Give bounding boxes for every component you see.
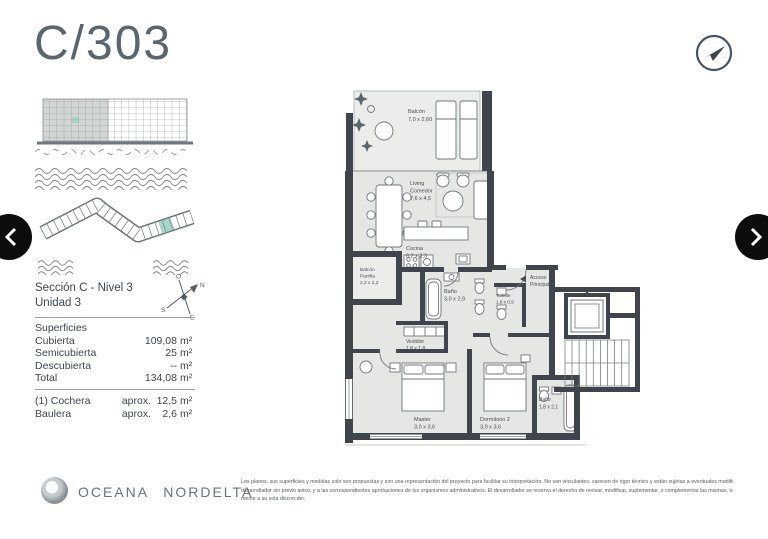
table-row: Cubierta 109,08 m² bbox=[35, 335, 195, 347]
table-row: Descubierta -- m² bbox=[35, 360, 195, 372]
row-label: Semicubierta bbox=[35, 347, 133, 359]
legal-disclaimer: Los planos, sus superficies y medidas so… bbox=[241, 478, 733, 504]
brand-logo-icon bbox=[41, 477, 68, 504]
brochure-page: C/303 bbox=[0, 0, 768, 539]
row-value: 25 bbox=[133, 347, 177, 359]
section-line: Sección C - Nivel 3 bbox=[35, 281, 133, 296]
send-arrow-icon bbox=[692, 31, 736, 75]
unit-line: Unidad 3 bbox=[35, 296, 133, 311]
compass-o: O bbox=[176, 274, 181, 281]
room-dim-balcon: 7,0 x 2,60 bbox=[408, 117, 432, 123]
table-row: Total 134,08 m² bbox=[35, 372, 195, 384]
room-label-vestidor: Vestidor bbox=[406, 339, 424, 345]
north-arrow-icon bbox=[190, 284, 198, 293]
label-acceso: Acceso bbox=[530, 275, 547, 281]
row-unit: m² bbox=[180, 372, 195, 384]
page-title: C/303 bbox=[34, 16, 172, 71]
room-dim-living: 7,6 x 4,5 bbox=[410, 196, 431, 202]
row-unit: m² bbox=[180, 408, 195, 421]
room-label-toilette: Toilette bbox=[496, 293, 511, 298]
row-value: 134,08 bbox=[133, 372, 177, 384]
water-waves-small-left bbox=[38, 259, 80, 275]
surfaces-header: Superficies bbox=[35, 322, 195, 335]
room-label-bano: Baño bbox=[444, 289, 457, 295]
table-row: Semicubierta 25 m² bbox=[35, 347, 195, 359]
row-unit: m² bbox=[180, 335, 195, 347]
disclaimer-line: mente a su sola discreción. bbox=[241, 495, 733, 504]
row-prefix: aprox. bbox=[122, 408, 151, 421]
row-label: Descubierta bbox=[35, 360, 133, 372]
room-dim-bano2: 1,8 x 2,1 bbox=[539, 405, 558, 411]
row-value: 2,6 bbox=[151, 408, 177, 421]
room-label-dormitorio2: Dormitorio 2 bbox=[480, 417, 510, 423]
row-label: Baulera bbox=[35, 408, 122, 421]
row-label: (1) Cochera bbox=[35, 395, 122, 408]
room-label-parrilla: Balcón bbox=[360, 267, 375, 273]
row-value: 109,08 bbox=[133, 335, 177, 347]
row-value: -- bbox=[133, 360, 177, 372]
next-unit-button[interactable] bbox=[735, 214, 768, 260]
row-label: Cubierta bbox=[35, 335, 133, 347]
room-dim-toilette: 1,8 x 0,9 bbox=[496, 300, 514, 305]
room-label-cocina: Cocina bbox=[406, 246, 424, 252]
room-label-master: Master bbox=[414, 417, 431, 423]
room-dim-vestidor: 1,8 x 1,8 bbox=[406, 346, 425, 352]
room-label-living: Living bbox=[410, 181, 424, 187]
disclaimer-line: desarrollador sin previo aviso, y a las … bbox=[241, 487, 733, 496]
building-elevation-graphic bbox=[35, 95, 195, 147]
room-dim-master: 3,0 x 3,6 bbox=[414, 425, 435, 431]
room-dim-dormitorio2: 3,0 x 3,6 bbox=[480, 425, 501, 431]
compass-n: N bbox=[200, 282, 205, 289]
row-unit: m² bbox=[180, 395, 195, 408]
water-waves-band bbox=[35, 166, 195, 190]
room-dim-parrilla: 2,2 x 2,2 bbox=[360, 280, 379, 286]
row-unit: m² bbox=[180, 360, 195, 372]
surfaces-table: Superficies Cubierta 109,08 m² Semicubie… bbox=[35, 322, 195, 385]
floorplan-drawing: Balcón 7,0 x 2,60 Living Comedor 7,6 x 4… bbox=[340, 85, 640, 447]
row-prefix: aprox. bbox=[122, 395, 151, 408]
compass-rose: N S O E bbox=[157, 272, 207, 320]
row-value: 12,5 bbox=[151, 395, 177, 408]
parrilla-balcony-area bbox=[353, 257, 398, 303]
row-unit: m² bbox=[180, 347, 195, 359]
divider-top bbox=[35, 317, 195, 318]
room-label-living2: Comedor bbox=[410, 189, 433, 195]
room-dim-cocina: 6,2 x 2,3 bbox=[406, 254, 427, 260]
table-row: (1) Cochera aprox. 12,5 m² bbox=[35, 395, 195, 408]
room-label-bano2: Baño bbox=[539, 397, 551, 403]
room-dim-bano: 3,0 x 2,9 bbox=[444, 297, 465, 303]
row-label: Total bbox=[35, 372, 133, 384]
room-label-parrilla2: Parrilla bbox=[360, 274, 375, 280]
divider-bottom bbox=[35, 389, 195, 390]
disclaimer-line: Los planos, sus superficies y medidas so… bbox=[241, 478, 733, 487]
share-button[interactable] bbox=[692, 31, 736, 75]
water-waves-dashed bbox=[35, 147, 195, 155]
label-acceso2: Principal bbox=[530, 282, 549, 288]
section-info: Sección C - Nivel 3 Unidad 3 bbox=[35, 281, 133, 311]
chevron-right-icon bbox=[735, 214, 768, 260]
room-label-balcon: Balcón bbox=[408, 109, 425, 115]
table-row: Baulera aprox. 2,6 m² bbox=[35, 408, 195, 421]
extras-table: (1) Cochera aprox. 12,5 m² Baulera aprox… bbox=[35, 395, 195, 420]
compass-s: S bbox=[161, 307, 166, 314]
level-keyplan-graphic bbox=[28, 196, 198, 256]
brand-name: OCEANA NORDELTA bbox=[78, 484, 253, 500]
